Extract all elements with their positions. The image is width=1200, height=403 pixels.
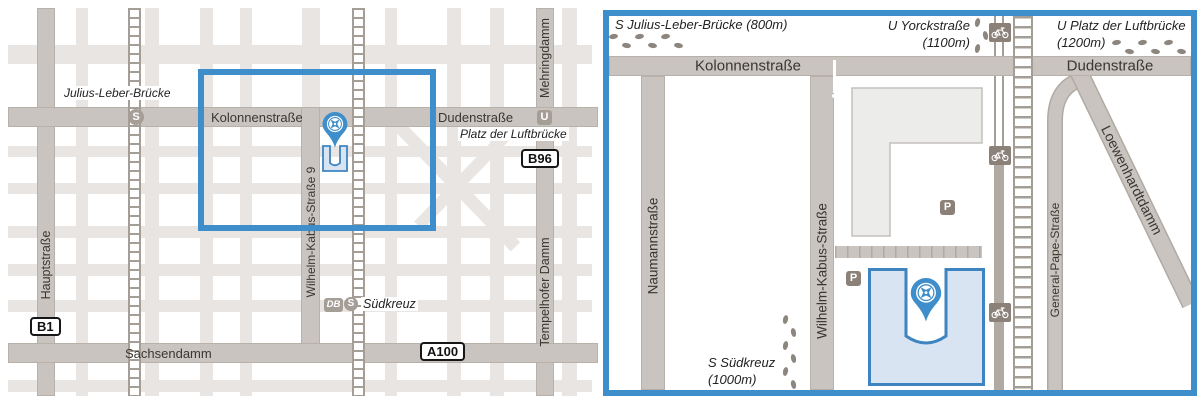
cycle-path xyxy=(994,160,1004,390)
minor-street xyxy=(8,264,592,276)
sbahn-badge: S xyxy=(344,297,358,311)
minor-street xyxy=(8,300,592,312)
overview-map: Julius-Leber-Brücke S Kolonnenstraße Dud… xyxy=(0,0,600,403)
label-suedkreuz: Südkreuz xyxy=(361,297,418,311)
bicycle-parking-icon xyxy=(989,23,1011,42)
label-u-platz-der-luftbruecke: U Platz der Luftbrücke xyxy=(1055,18,1188,33)
label-hauptstrasse: Hauptstraße xyxy=(39,231,53,300)
db-badge: DB xyxy=(324,298,343,312)
parking-lane xyxy=(835,246,982,258)
crossing-path xyxy=(833,60,836,93)
location-pin-icon xyxy=(322,112,348,148)
route-badge-b96: B96 xyxy=(521,149,559,168)
location-pin-icon xyxy=(910,278,942,322)
detail-map: P P S Julius- xyxy=(603,10,1197,396)
map-figure: Julius-Leber-Brücke S Kolonnenstraße Dud… xyxy=(0,0,1200,403)
label-u-yorckstrasse: U Yorckstraße xyxy=(818,18,972,33)
bicycle-parking-icon xyxy=(989,146,1011,165)
label-mehringdamm: Mehringdamm xyxy=(538,18,552,98)
route-badge-b1: B1 xyxy=(30,317,61,336)
building-block xyxy=(851,87,983,237)
route-badge-a100: A100 xyxy=(420,342,465,361)
label-tempelhofer-damm: Tempelhofer Damm xyxy=(538,237,552,346)
label-general-pape-strasse: General-Pape-Straße xyxy=(1048,203,1062,318)
label-s-suedkreuz: S Südkreuz xyxy=(706,355,777,370)
label-julius-leber-bruecke: Julius-Leber-Brücke xyxy=(62,86,173,100)
bicycle-parking-icon xyxy=(989,303,1011,322)
label-s-julius-leber-bruecke: S Julius-Leber-Brücke (800m) xyxy=(613,17,789,32)
label-platz-der-luftbruecke: Platz der Luftbrücke xyxy=(458,127,569,141)
label-u-yorckstrasse-distance: (1100m) xyxy=(818,35,972,50)
parking-icon: P xyxy=(846,271,861,286)
label-u-platz-der-luftbruecke-distance: (1200m) xyxy=(1055,35,1107,50)
label-wilhelm-kabus-strasse: Wilhelm-Kabus-Straße xyxy=(815,203,830,339)
road-sachsendamm xyxy=(8,343,598,363)
crossing-path-dot xyxy=(832,94,836,98)
parking-icon: P xyxy=(940,200,955,215)
railway-line xyxy=(1013,16,1033,390)
minor-street xyxy=(490,8,504,396)
label-sachsendamm: Sachsendamm xyxy=(125,346,212,361)
railway-line xyxy=(128,8,141,396)
minor-street xyxy=(8,45,592,64)
label-s-suedkreuz-distance: (1000m) xyxy=(706,372,758,387)
label-dudenstrasse: Dudenstraße xyxy=(438,110,513,125)
minor-street xyxy=(76,8,88,396)
label-kolonnenstrasse: Kolonnenstraße xyxy=(695,58,801,75)
label-naumannstrasse: Naumannstraße xyxy=(646,198,661,295)
sbahn-badge: S xyxy=(128,109,144,125)
road-hauptstrasse xyxy=(37,8,55,396)
minor-street xyxy=(8,380,592,392)
minor-street xyxy=(145,8,159,396)
minor-street xyxy=(562,8,577,396)
detail-viewport-rectangle xyxy=(198,69,436,231)
label-dudenstrasse: Dudenstraße xyxy=(1067,58,1154,75)
ubahn-badge: U xyxy=(537,110,552,125)
